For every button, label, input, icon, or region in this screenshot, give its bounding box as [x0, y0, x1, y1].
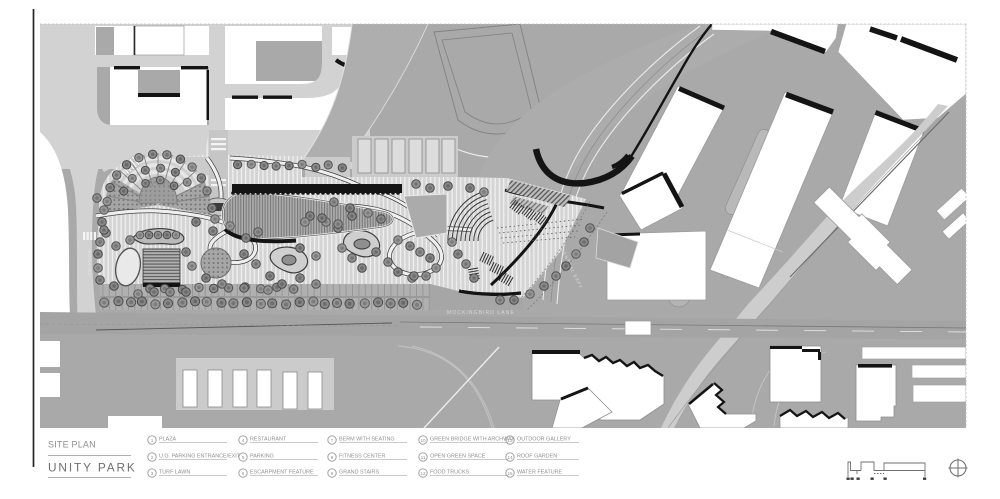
svg-text:3: 3 [151, 471, 154, 476]
svg-text:6: 6 [242, 471, 245, 476]
svg-text:BONAIRE: BONAIRE [87, 250, 92, 277]
svg-text:2: 2 [151, 455, 154, 460]
svg-text:13: 13 [507, 438, 513, 443]
svg-text:5: 5 [242, 455, 245, 460]
svg-text:4: 4 [242, 438, 245, 443]
svg-text:SITE PLAN: SITE PLAN [48, 440, 96, 450]
svg-text:GRAND STAIRS: GRAND STAIRS [339, 470, 379, 476]
svg-text:OUTDOOR GALLERY: OUTDOOR GALLERY [517, 437, 571, 443]
svg-text:12: 12 [420, 471, 426, 476]
svg-text:TURF LAWN: TURF LAWN [159, 470, 190, 476]
svg-text:10: 10 [420, 438, 426, 443]
svg-text:7: 7 [331, 438, 334, 443]
svg-text:GREEN BRIDGE WITH ARCHWAY: GREEN BRIDGE WITH ARCHWAY [430, 437, 515, 443]
svg-text:ESCARPMENT FEATURE: ESCARPMENT FEATURE [250, 470, 314, 476]
svg-text:MOCKINGBIRD LANE: MOCKINGBIRD LANE [447, 310, 515, 316]
svg-text:WATER FEATURE: WATER FEATURE [517, 470, 563, 476]
svg-text:BERM WITH SEATING: BERM WITH SEATING [339, 437, 395, 443]
svg-text:RESTAURANT: RESTAURANT [250, 437, 287, 443]
svg-text:ROOF GARDEN: ROOF GARDEN [517, 454, 557, 460]
svg-text:15: 15 [507, 471, 513, 476]
svg-text:U.G. PARKING ENTRANCE/EXIT: U.G. PARKING ENTRANCE/EXIT [159, 454, 241, 460]
svg-text:FITNESS CENTER: FITNESS CENTER [339, 454, 386, 460]
svg-text:14: 14 [507, 455, 513, 460]
svg-text:FOOD TRUCKS: FOOD TRUCKS [430, 470, 470, 476]
svg-text:UNITY PARK: UNITY PARK [48, 461, 137, 475]
svg-text:11: 11 [421, 455, 426, 460]
svg-text:9: 9 [331, 471, 334, 476]
svg-text:PARKING: PARKING [250, 454, 274, 460]
svg-text:8: 8 [331, 455, 334, 460]
svg-text:OPEN GREEN SPACE: OPEN GREEN SPACE [430, 454, 486, 460]
svg-text:PLAZA: PLAZA [159, 437, 176, 443]
svg-text:1: 1 [151, 438, 154, 443]
